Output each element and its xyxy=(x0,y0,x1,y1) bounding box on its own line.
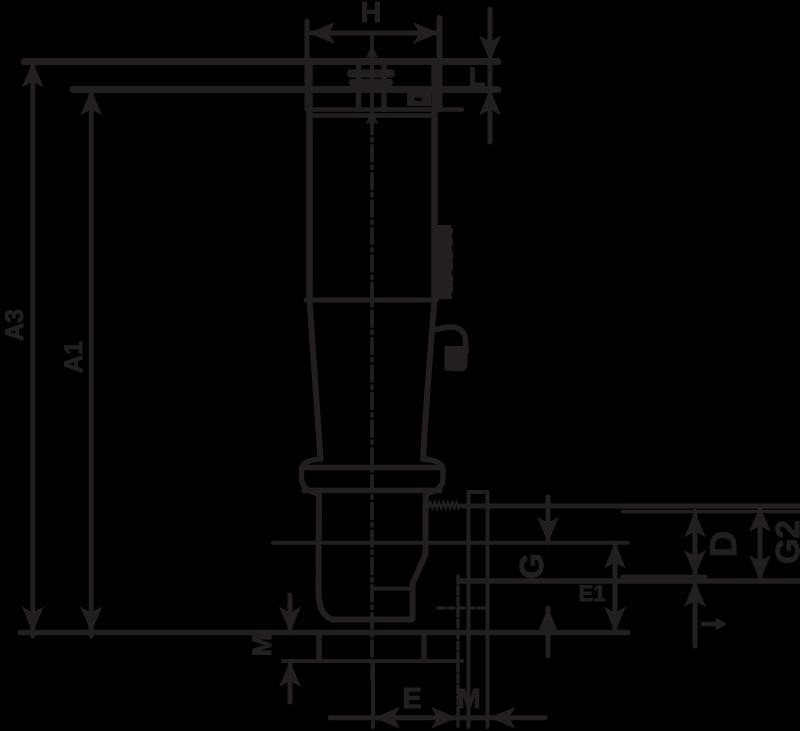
svg-text:E: E xyxy=(402,683,421,715)
svg-text:A1: A1 xyxy=(60,341,88,373)
svg-text:M: M xyxy=(247,634,277,657)
svg-text:G: G xyxy=(513,553,550,579)
svg-text:E1: E1 xyxy=(579,581,606,606)
svg-text:M: M xyxy=(457,683,480,714)
svg-text:A3: A3 xyxy=(1,309,29,341)
svg-text:D: D xyxy=(703,531,744,558)
svg-text:H: H xyxy=(361,0,382,29)
svg-text:G2: G2 xyxy=(769,520,800,564)
svg-text:L: L xyxy=(469,62,486,92)
